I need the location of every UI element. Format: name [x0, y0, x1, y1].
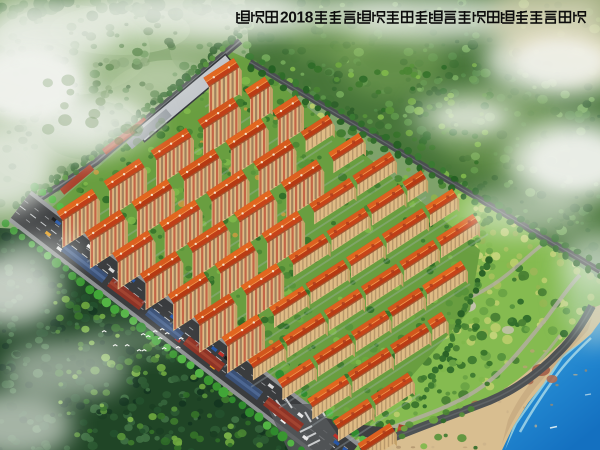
svg-text:2018: 2018 — [280, 9, 314, 26]
